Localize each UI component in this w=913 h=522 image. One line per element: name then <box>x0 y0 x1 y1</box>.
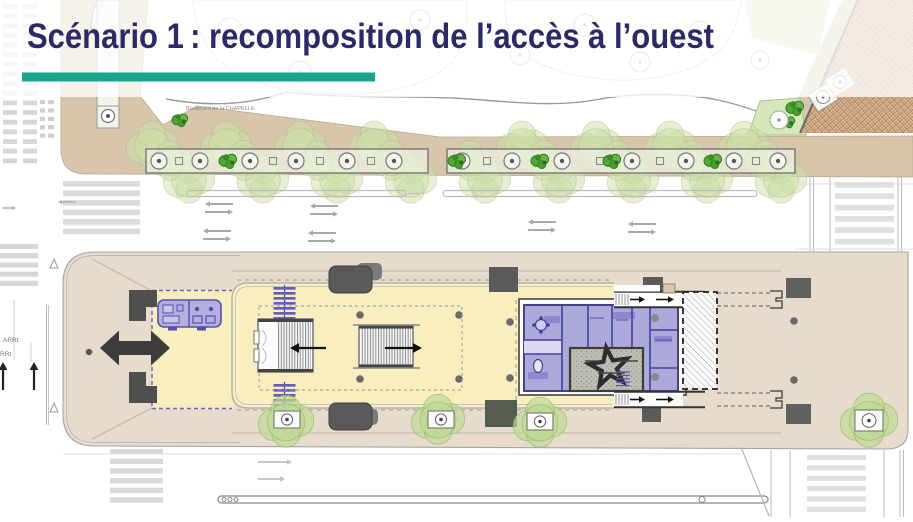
svg-text:Scénario 1 : recomposition de: Scénario 1 : recomposition de l’accès à … <box>27 17 714 56</box>
svg-text:ARRt: ARRt <box>3 337 19 344</box>
svg-text:Boulevard de la CHAPELLE: Boulevard de la CHAPELLE <box>186 106 255 112</box>
svg-text:RRt: RRt <box>0 351 11 358</box>
